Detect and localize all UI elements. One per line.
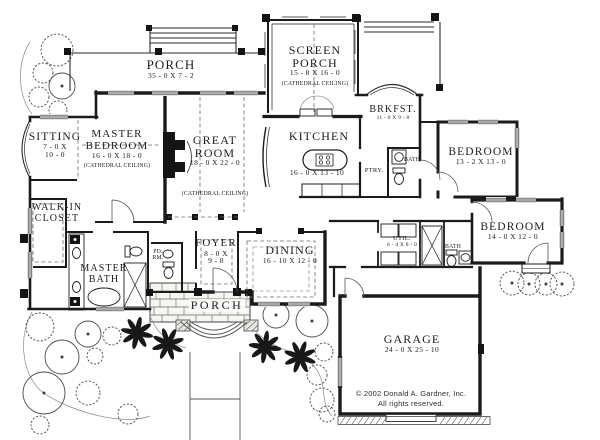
room-name: PORCH — [189, 299, 246, 312]
ceiling-note: (CATHEDRAL CEILING) — [84, 163, 151, 169]
palm-plant-icons — [118, 314, 322, 379]
room-name: FOYER — [195, 238, 237, 250]
room-dims: 14 - 0 X 12 - 0 — [480, 233, 545, 241]
room-label-util: UTIL. 6 - 4 X 8 - 0 — [387, 236, 417, 249]
room-name: GARAGE — [384, 333, 441, 346]
room-label-foyer: FOYER 8 - 0 X 9 - 8 — [195, 238, 237, 265]
room-dims: 16 - 0 X 13 - 10 — [290, 169, 344, 177]
copyright-notice: © 2002 Donald A. Gardner, Inc. All right… — [356, 389, 466, 409]
room-label-porch-bottom: PORCH — [189, 299, 246, 312]
room-name: WALK-IN — [32, 203, 82, 214]
room-name: SCREEN — [282, 44, 349, 57]
room-dims: 16 - 0 X 18 - 0 — [84, 152, 151, 160]
room-name: PORCH — [147, 58, 196, 72]
room-name: KITCHEN — [289, 130, 349, 143]
room-label-bath-upper: BATH — [404, 157, 420, 163]
room-name: CLOSET — [32, 214, 82, 225]
fireplace — [163, 132, 192, 178]
room-label-bedroom-top: BEDROOM 13 - 2 X 13 - 0 — [448, 146, 513, 166]
room-name: BRKFST. — [369, 105, 416, 116]
room-dims: 6 - 4 X 8 - 0 — [387, 243, 417, 249]
room-dims: 13 - 2 X 13 - 0 — [448, 158, 513, 166]
room-name: RM. — [152, 255, 163, 261]
room-label-bedroom-bottom: BEDROOM 14 - 0 X 12 - 0 — [480, 221, 545, 241]
room-name: BATH — [445, 244, 461, 250]
room-name: BATH — [80, 275, 127, 286]
room-dims: 11 - 0 X 9 - 8 — [369, 116, 416, 122]
great-room-ceiling-note: (CATHEDRAL CEILING) — [182, 191, 249, 197]
ceiling-note: (CATHEDRAL CEILING) — [282, 81, 349, 87]
room-dims: 18 - 0 X 22 - 0 — [190, 159, 240, 167]
kitchen-dims: 16 - 0 X 13 - 10 — [290, 169, 344, 177]
room-label-screen-porch: SCREEN PORCH 15 - 8 X 16 - 0 (CATHEDRAL … — [282, 44, 349, 87]
room-name: BATH — [404, 157, 420, 163]
room-dims: 16 - 10 X 12 - 0 — [263, 257, 317, 265]
room-label-brkfst: BRKFST. 11 - 0 X 9 - 8 — [369, 105, 416, 121]
room-name: MASTER — [84, 129, 151, 141]
room-label-dining: DINING 16 - 10 X 12 - 0 — [263, 244, 317, 264]
fixtures — [69, 150, 472, 310]
room-label-bath-lower: BATH — [445, 244, 461, 250]
room-dims: 35 - 0 X 7 - 2 — [147, 72, 196, 80]
room-label-pd-rm: PD. RM. — [152, 249, 163, 261]
copyright-line1: © 2002 Donald A. Gardner, Inc. — [356, 389, 466, 399]
room-label-kitchen: KITCHEN — [289, 130, 349, 143]
room-label-sitting: SITTING 7 - 0 X 10 - 0 — [29, 131, 81, 159]
ceiling-note: (CATHEDRAL CEILING) — [182, 191, 249, 197]
room-name: GREAT — [190, 134, 240, 147]
room-label-master-bath: MASTER BATH — [80, 264, 127, 285]
room-name: MASTER — [80, 264, 127, 275]
room-label-garage: GARAGE 24 - 0 X 25 - 10 — [384, 333, 441, 353]
room-dims: 15 - 8 X 16 - 0 — [282, 69, 349, 77]
room-name: DINING — [263, 244, 317, 257]
copyright-line2: All rights reserved. — [356, 399, 466, 409]
curved-wall — [263, 127, 270, 187]
room-dims: 10 - 0 — [29, 151, 81, 159]
room-label-master-bedroom: MASTER BEDROOM 16 - 0 X 18 - 0 (CATHEDRA… — [84, 129, 151, 169]
room-name: PTRY. — [365, 168, 384, 175]
floor-plan: PORCH 35 - 0 X 7 - 2 SCREEN PORCH 15 - 8… — [0, 0, 600, 440]
room-label-porch-top: PORCH 35 - 0 X 7 - 2 — [147, 58, 196, 80]
room-dims: 9 - 8 — [195, 257, 237, 265]
room-label-ptry: PTRY. — [365, 168, 384, 175]
room-label-walk-in-closet: WALK-IN CLOSET — [32, 203, 82, 224]
room-dims: 24 - 0 X 25 - 10 — [384, 346, 441, 354]
room-label-great-room: GREAT ROOM 18 - 0 X 22 - 0 — [190, 134, 240, 167]
